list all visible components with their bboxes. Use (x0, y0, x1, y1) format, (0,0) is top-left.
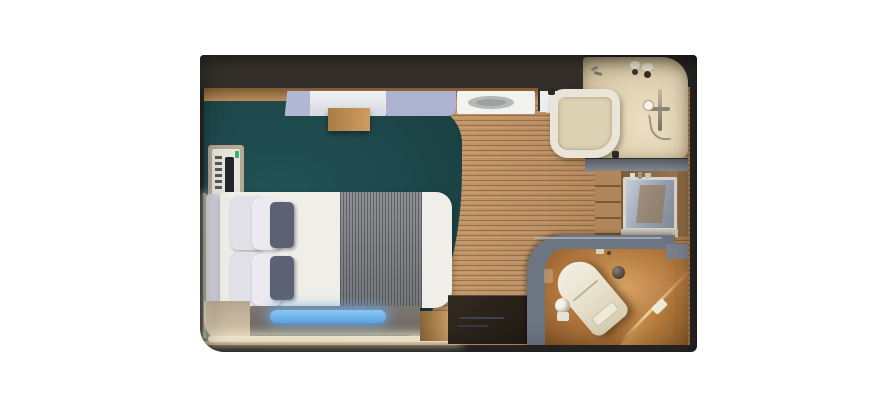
top-wall-band (200, 55, 586, 88)
toilet-seat-seam (573, 280, 599, 302)
vanity-item (630, 173, 635, 179)
basin (630, 61, 640, 69)
toilet-paper-roll (555, 298, 570, 313)
hand-shower-head (643, 100, 654, 111)
cove-light-left (203, 193, 206, 338)
lit-floor-corner (204, 301, 250, 341)
screen-hinge (612, 151, 619, 158)
faucet-icon (632, 69, 638, 75)
bench-blue-cushion (270, 310, 386, 323)
vanity-item (638, 172, 642, 179)
toilet-lid-panel (591, 301, 620, 327)
basin (642, 63, 653, 71)
footboard-seam (418, 194, 419, 306)
bathroom-divider-wall (585, 158, 688, 172)
shower-glass-screen (550, 89, 620, 158)
wall-switch (544, 269, 553, 283)
flush-knob (612, 266, 625, 279)
wall-fixture (607, 251, 611, 255)
pillow-accent (270, 202, 294, 248)
partition-highlight (534, 237, 662, 239)
mirror-reflection (636, 185, 666, 223)
wardrobe-side-panel (678, 171, 688, 237)
ceiling-light-core (476, 99, 506, 106)
bed-runner-blanket (340, 192, 422, 308)
phone-led (235, 151, 239, 158)
wall-fixture (596, 249, 604, 254)
wood-sill-strip (420, 311, 448, 341)
toilet-paper-holder (557, 312, 569, 321)
vanity-item (645, 173, 651, 178)
phone-buttons (215, 156, 222, 190)
faucet-icon (644, 71, 651, 78)
pillow-accent (270, 256, 294, 300)
stateroom-outline (200, 55, 697, 352)
overhead-wood-box (328, 108, 370, 131)
wardrobe-shelves (595, 171, 621, 237)
mat-pattern-line (460, 317, 504, 319)
partition-step (666, 244, 688, 259)
phone-handset (225, 157, 234, 195)
mat-pattern-line (458, 325, 488, 327)
entry-door-mat (448, 295, 528, 344)
screen-hinge (548, 88, 555, 95)
overhead-panel-right (386, 91, 456, 116)
floorplan-canvas (0, 0, 881, 400)
